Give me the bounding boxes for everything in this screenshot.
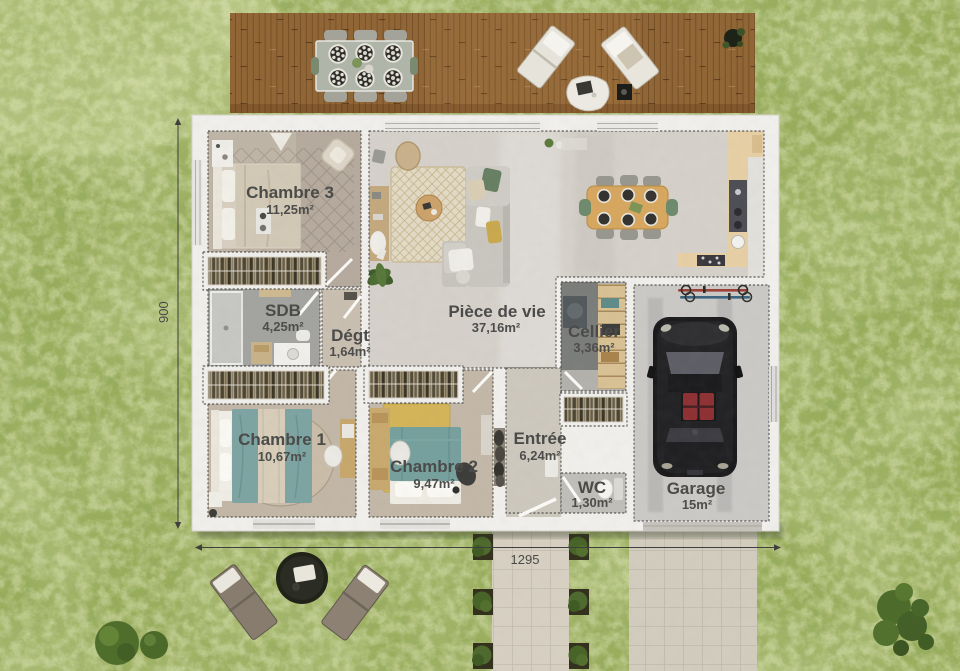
svg-text:SDB: SDB bbox=[265, 301, 301, 320]
svg-text:37,16m²: 37,16m² bbox=[472, 320, 521, 335]
svg-text:Chambre 3: Chambre 3 bbox=[246, 183, 334, 202]
svg-text:Chambre 1: Chambre 1 bbox=[238, 430, 326, 449]
svg-text:1295: 1295 bbox=[511, 552, 540, 567]
svg-text:Entrée: Entrée bbox=[514, 429, 567, 448]
svg-text:Garage: Garage bbox=[667, 479, 726, 498]
svg-text:Dégt: Dégt bbox=[331, 326, 369, 345]
svg-text:Chambre 2: Chambre 2 bbox=[390, 457, 478, 476]
svg-text:1,64m²: 1,64m² bbox=[329, 344, 371, 359]
svg-text:Cellier: Cellier bbox=[568, 322, 620, 341]
svg-text:Pièce de vie: Pièce de vie bbox=[448, 302, 545, 321]
svg-text:6,24m²: 6,24m² bbox=[519, 448, 561, 463]
svg-text:10,67m²: 10,67m² bbox=[258, 449, 307, 464]
svg-text:3,36m²: 3,36m² bbox=[573, 340, 615, 355]
svg-text:15m²: 15m² bbox=[682, 497, 713, 512]
svg-text:900: 900 bbox=[156, 301, 171, 323]
svg-text:11,25m²: 11,25m² bbox=[266, 202, 314, 217]
svg-text:9,47m²: 9,47m² bbox=[413, 476, 455, 491]
svg-text:4,25m²: 4,25m² bbox=[262, 319, 304, 334]
svg-text:1,30m²: 1,30m² bbox=[571, 495, 613, 510]
